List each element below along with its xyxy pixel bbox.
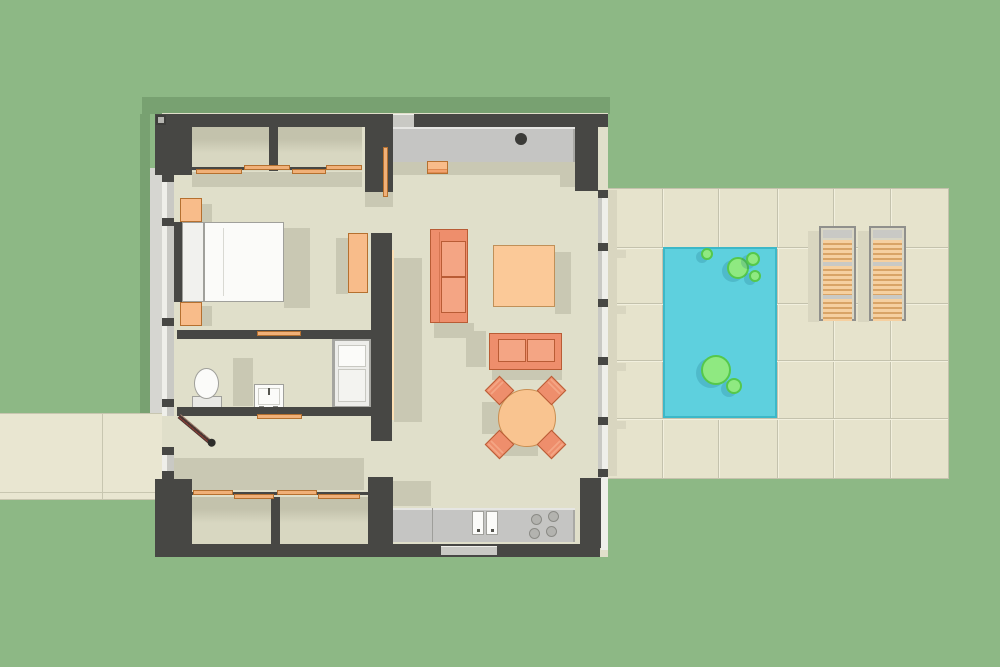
swimming-pool xyxy=(663,247,777,418)
entry-path xyxy=(0,413,162,500)
roof-shadow-top xyxy=(142,97,610,114)
floor-plan xyxy=(0,0,1000,667)
 xyxy=(150,168,162,480)
corner-post xyxy=(156,115,166,125)
pool-terrace xyxy=(608,189,948,478)
house-floor xyxy=(162,113,608,557)
roof-shadow-left xyxy=(140,114,150,413)
